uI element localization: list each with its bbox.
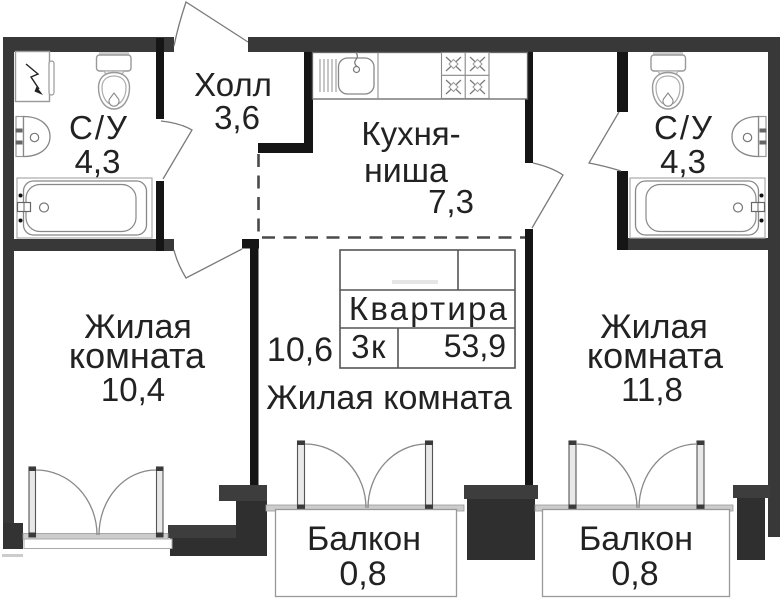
svg-text:С/У: С/У	[654, 109, 714, 146]
svg-text:3к: 3к	[351, 328, 387, 365]
svg-text:10,6: 10,6	[267, 331, 333, 369]
svg-text:Квартира: Квартира	[349, 290, 509, 327]
svg-text:Холл: Холл	[194, 66, 272, 103]
svg-text:Жилая комната: Жилая комната	[266, 379, 512, 417]
svg-text:10,4: 10,4	[101, 371, 165, 408]
svg-text:3,6: 3,6	[214, 99, 260, 136]
svg-text:4,3: 4,3	[75, 143, 121, 180]
svg-text:53,9: 53,9	[444, 328, 506, 364]
svg-text:7,3: 7,3	[428, 183, 474, 220]
svg-text:Балкон: Балкон	[307, 520, 421, 558]
svg-text:комната: комната	[69, 335, 206, 376]
svg-text:комната: комната	[587, 335, 724, 376]
svg-text:Кухня-: Кухня-	[361, 115, 460, 152]
svg-text:0,8: 0,8	[611, 555, 658, 593]
svg-text:4,3: 4,3	[660, 143, 706, 180]
svg-text:0,8: 0,8	[339, 555, 386, 593]
svg-text:С/У: С/У	[69, 109, 129, 146]
svg-text:11,8: 11,8	[621, 371, 683, 408]
svg-text:Балкон: Балкон	[579, 520, 693, 558]
